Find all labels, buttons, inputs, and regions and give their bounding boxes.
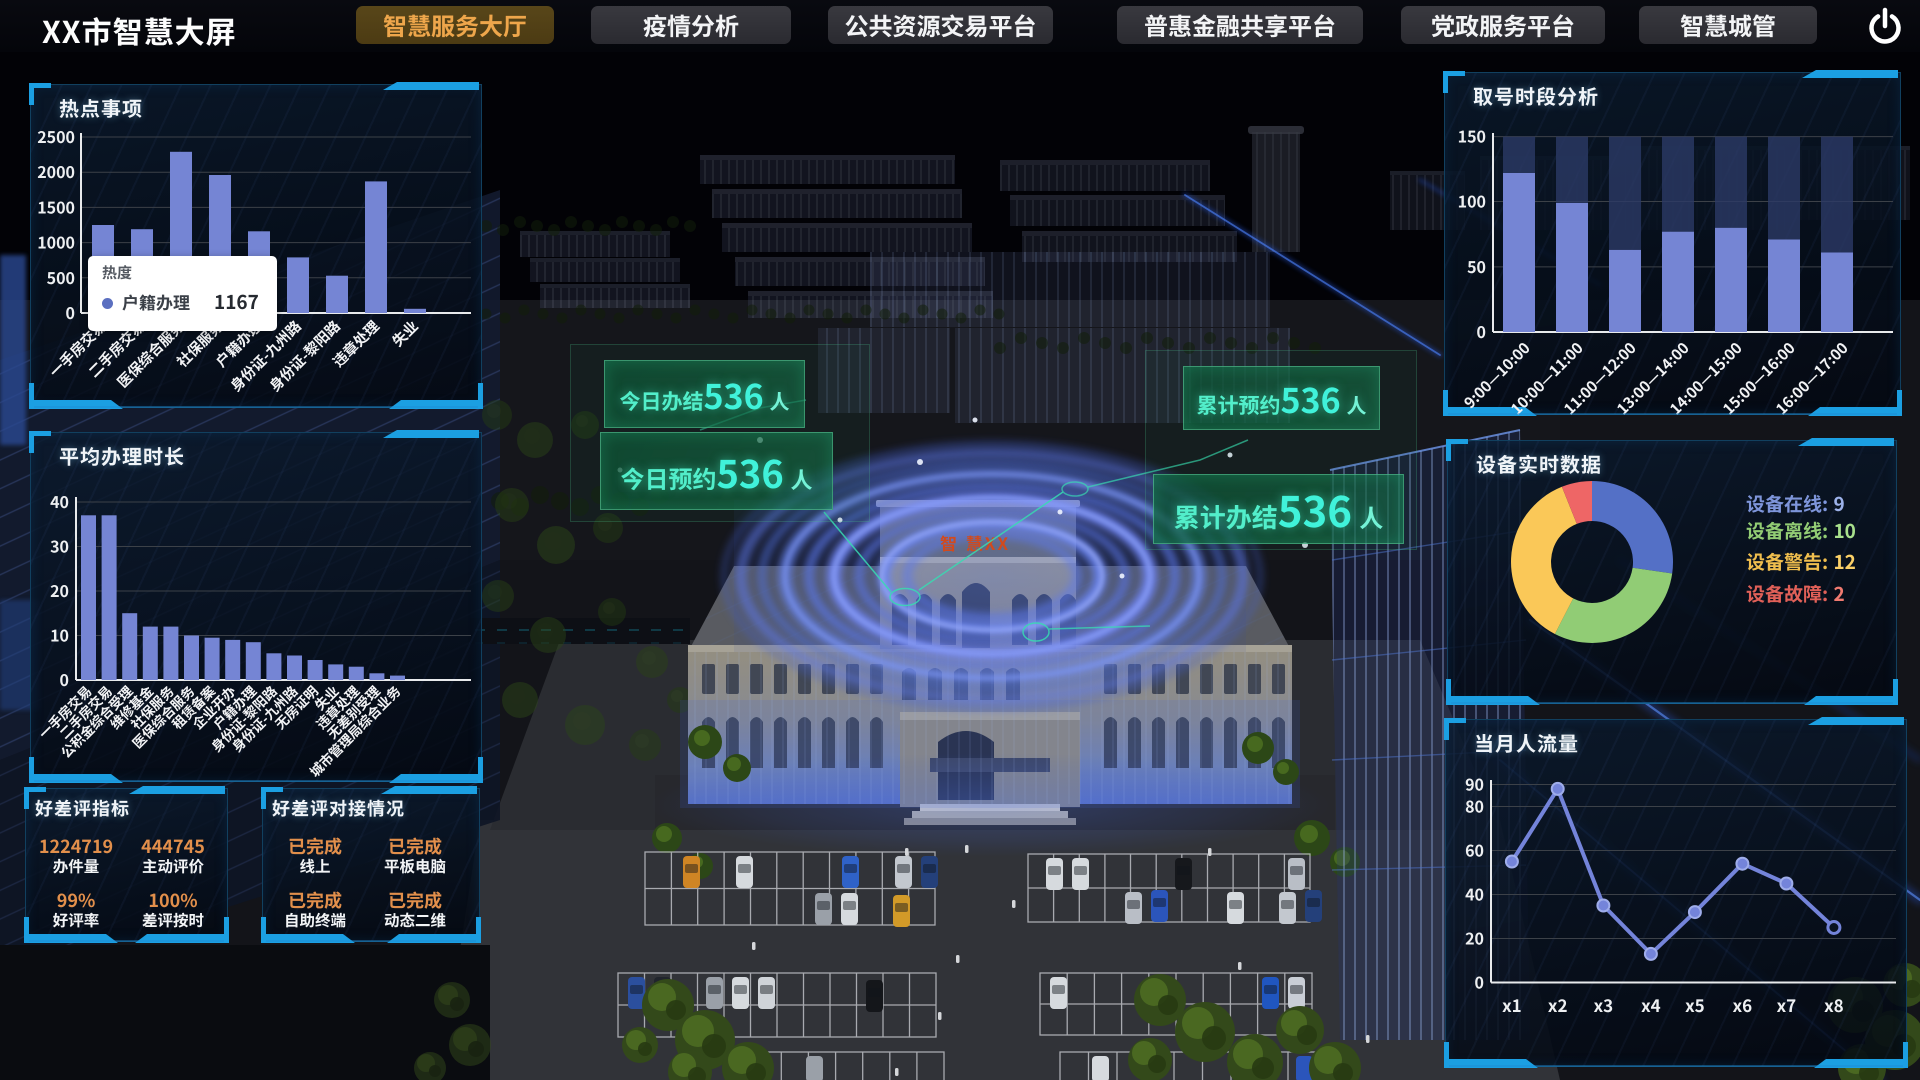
- svg-text:x4: x4: [1641, 992, 1661, 1017]
- svg-text:设备警告: 12: 设备警告: 12: [1746, 548, 1856, 575]
- svg-text:150: 150: [1458, 124, 1486, 148]
- svg-text:30: 30: [50, 534, 69, 558]
- svg-text:40: 40: [1465, 882, 1484, 906]
- svg-text:0: 0: [1477, 319, 1486, 343]
- svg-text:0: 0: [1475, 970, 1484, 994]
- svg-text:x3: x3: [1594, 992, 1614, 1017]
- svg-text:10: 10: [50, 623, 69, 647]
- svg-text:0: 0: [66, 300, 75, 324]
- svg-text:90: 90: [1465, 772, 1484, 796]
- svg-text:20: 20: [1465, 926, 1484, 950]
- svg-text:x2: x2: [1548, 992, 1568, 1017]
- svg-text:0: 0: [60, 667, 69, 691]
- svg-text:x1: x1: [1502, 992, 1522, 1017]
- svg-text:20: 20: [50, 578, 69, 602]
- svg-text:40: 40: [50, 489, 69, 513]
- svg-text:设备故障: 2: 设备故障: 2: [1746, 580, 1845, 607]
- svg-text:1500: 1500: [37, 194, 75, 218]
- svg-text:100: 100: [1458, 189, 1486, 213]
- svg-text:1000: 1000: [37, 230, 75, 254]
- svg-text:失业: 失业: [387, 316, 422, 351]
- svg-text:x6: x6: [1733, 992, 1753, 1017]
- svg-text:2500: 2500: [37, 124, 75, 148]
- svg-text:60: 60: [1465, 838, 1484, 862]
- svg-text:x7: x7: [1777, 992, 1797, 1017]
- svg-text:设备离线: 10: 设备离线: 10: [1746, 517, 1856, 544]
- svg-text:2000: 2000: [37, 159, 75, 183]
- svg-text:500: 500: [47, 265, 75, 289]
- svg-text:设备在线: 9: 设备在线: 9: [1746, 490, 1845, 517]
- svg-text:x5: x5: [1685, 992, 1705, 1017]
- svg-text:x8: x8: [1824, 992, 1844, 1017]
- svg-text:80: 80: [1465, 794, 1484, 818]
- svg-text:50: 50: [1467, 254, 1486, 278]
